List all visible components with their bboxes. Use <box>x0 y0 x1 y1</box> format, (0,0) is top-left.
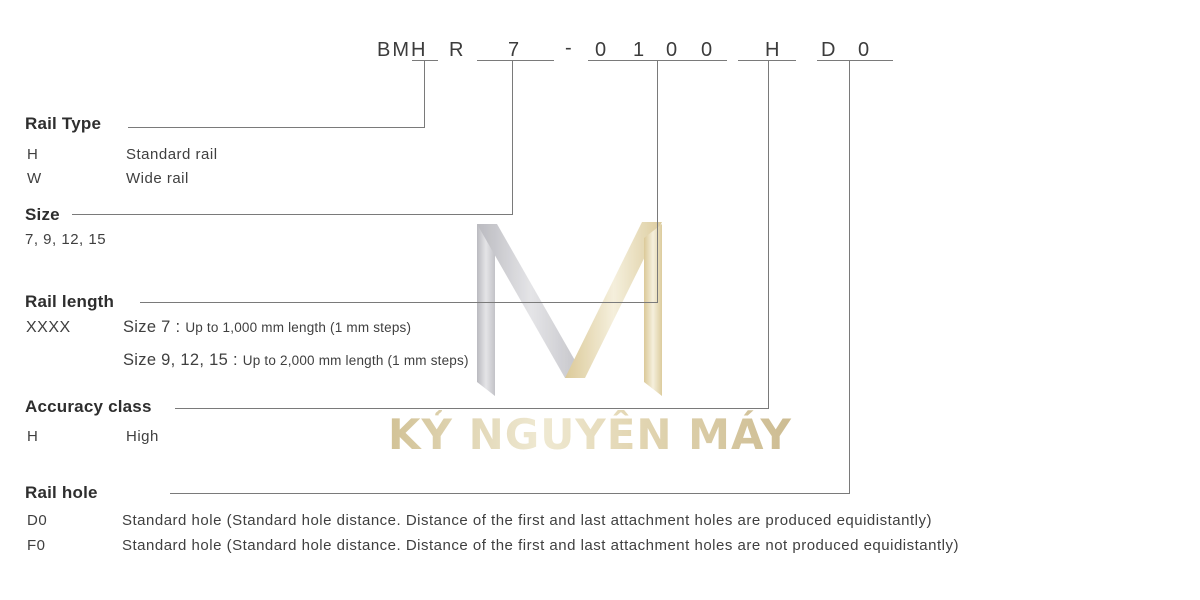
code-length-digit-4: 0 <box>701 39 714 61</box>
rail-hole-desc-d0: Standard hole (Standard hole distance. D… <box>122 512 932 529</box>
size-values: 7, 9, 12, 15 <box>25 231 106 248</box>
section-title-size: Size <box>25 205 60 225</box>
rail-length-row-1-detail: Up to 1,000 mm length (1 mm steps) <box>185 320 411 335</box>
rail-length-row-2-label: Size 9, 12, 15 : <box>123 351 243 369</box>
rail-type-code-w: W <box>27 170 42 187</box>
rail-type-desc-w: Wide rail <box>126 170 189 187</box>
code-rail-symbol: R <box>449 39 465 61</box>
accuracy-desc-h: High <box>126 428 159 445</box>
code-accuracy-value: H <box>765 39 781 61</box>
catalog-page: KỶ NGUYÊN MÁY BMH R 7 - 0 1 0 0 H D 0 Ra… <box>0 0 1200 600</box>
section-title-rail-length: Rail length <box>25 292 114 312</box>
rail-hole-desc-f0: Standard hole (Standard hole distance. D… <box>122 537 959 554</box>
code-separator: - <box>565 37 574 59</box>
rail-length-row-1: Size 7 : Up to 1,000 mm length (1 mm ste… <box>123 318 411 337</box>
code-length-digit-3: 0 <box>666 39 679 61</box>
rail-type-code-h: H <box>27 146 38 163</box>
rail-hole-code-d0: D0 <box>27 512 47 529</box>
code-length-digit-1: 0 <box>595 39 608 61</box>
accuracy-code-h: H <box>27 428 38 445</box>
code-hole-digit: 0 <box>858 39 871 61</box>
section-title-rail-hole: Rail hole <box>25 483 98 503</box>
rail-hole-code-f0: F0 <box>27 537 46 554</box>
code-model-prefix: BMH <box>377 39 427 61</box>
code-size-value: 7 <box>508 39 521 61</box>
rail-type-desc-h: Standard rail <box>126 146 218 163</box>
rail-length-row-2: Size 9, 12, 15 : Up to 2,000 mm length (… <box>123 351 469 370</box>
code-hole-letter: D <box>821 39 837 61</box>
code-length-digit-2: 1 <box>633 39 646 61</box>
leader-line-rail-hole <box>170 61 850 494</box>
rail-length-row-2-detail: Up to 2,000 mm length (1 mm steps) <box>243 353 469 368</box>
section-title-rail-type: Rail Type <box>25 114 101 134</box>
rail-length-row-1-label: Size 7 : <box>123 318 185 336</box>
rail-length-code: XXXX <box>26 319 71 337</box>
section-title-accuracy-class: Accuracy class <box>25 397 152 417</box>
